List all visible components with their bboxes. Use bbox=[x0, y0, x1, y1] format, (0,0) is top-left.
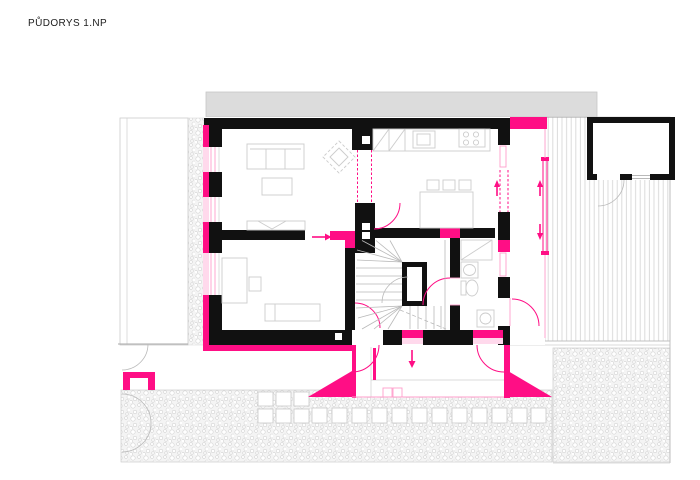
driveway bbox=[120, 118, 188, 345]
neighbor-building bbox=[206, 92, 597, 117]
outbuilding bbox=[587, 117, 675, 180]
furniture-dining bbox=[420, 180, 473, 228]
gravel-west-strip bbox=[188, 118, 204, 345]
gravel-east bbox=[553, 348, 670, 462]
floor-plan-svg bbox=[0, 0, 700, 480]
furniture-kitchen bbox=[373, 129, 490, 151]
gate-swing bbox=[122, 344, 148, 370]
new-gate-frame bbox=[123, 372, 155, 390]
gravel-south bbox=[121, 390, 552, 462]
floor-plan-page: PŮDORYS 1.NP bbox=[0, 0, 700, 480]
entrance-vestibule bbox=[308, 345, 552, 397]
ramp-left bbox=[308, 371, 352, 397]
